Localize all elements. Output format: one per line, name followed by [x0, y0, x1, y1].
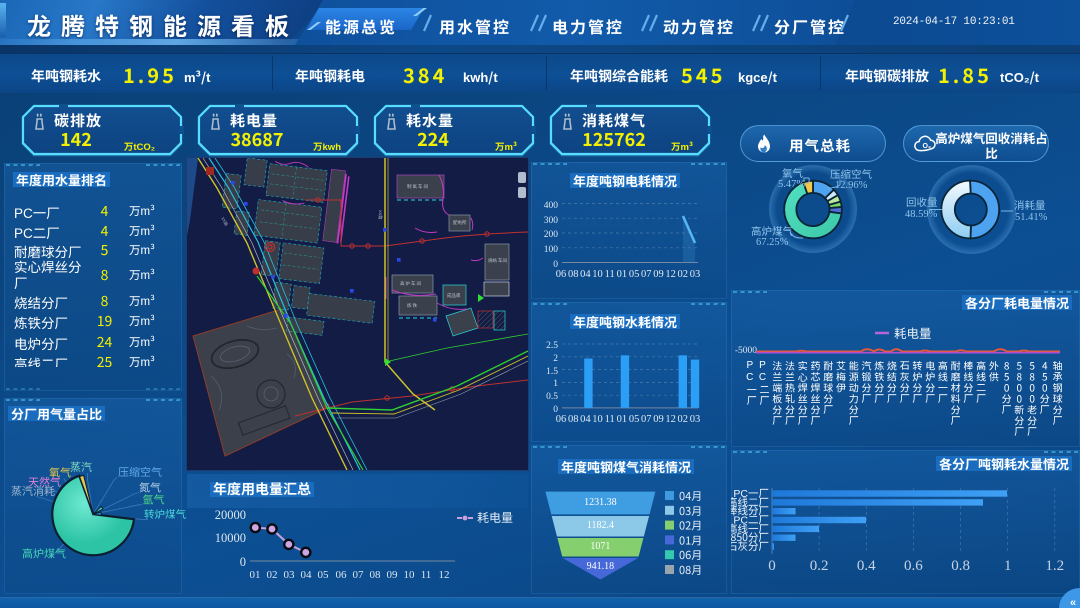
svg-text:2.5: 2.5 [546, 341, 558, 351]
svg-text:高炉煤气: 高炉煤气 [22, 546, 66, 562]
svg-text:耗电量: 耗电量 [477, 509, 513, 526]
svg-text:06: 06 [336, 569, 348, 581]
svg-text:炼 铁: 炼 铁 [407, 303, 418, 309]
svg-text:转炉煤气: 转炉煤气 [144, 507, 186, 522]
svg-text:10: 10 [404, 569, 416, 581]
svg-text:0: 0 [240, 555, 246, 569]
svg-text:09: 09 [653, 414, 664, 425]
svg-text:05: 05 [318, 569, 330, 581]
svg-text:10: 10 [592, 269, 603, 280]
svg-text:05: 05 [629, 269, 640, 280]
svg-text:12: 12 [665, 414, 676, 425]
svg-text:-5000: -5000 [735, 346, 757, 356]
svg-text:01: 01 [617, 269, 628, 280]
svg-text:5.47%: 5.47% [778, 179, 805, 190]
svg-text:01: 01 [250, 569, 261, 581]
svg-text:2: 2 [553, 354, 558, 364]
svg-text:03: 03 [284, 569, 296, 581]
svg-text:11: 11 [605, 414, 615, 425]
svg-text:蒸汽消耗: 蒸汽消耗 [11, 483, 55, 499]
svg-text:1182.4: 1182.4 [587, 520, 614, 531]
svg-text:06月: 06月 [679, 547, 702, 563]
svg-text:04月: 04月 [679, 488, 702, 504]
svg-text:XX路: XX路 [377, 210, 384, 219]
svg-text:48.59%: 48.59% [905, 209, 938, 220]
svg-text:1.5: 1.5 [546, 367, 558, 377]
svg-text:03: 03 [690, 414, 701, 425]
svg-text:06: 06 [556, 414, 567, 425]
svg-text:09: 09 [387, 569, 399, 581]
svg-text:蒸汽: 蒸汽 [70, 459, 92, 475]
svg-text:1231.38: 1231.38 [584, 497, 617, 508]
svg-text:08: 08 [568, 414, 579, 425]
svg-text:200: 200 [544, 230, 559, 240]
svg-text:10: 10 [592, 414, 603, 425]
svg-text:02: 02 [678, 269, 689, 280]
svg-text:07: 07 [353, 569, 365, 581]
svg-text:配电所: 配电所 [453, 219, 467, 226]
svg-text:20000: 20000 [215, 508, 246, 522]
svg-text:0: 0 [768, 558, 776, 574]
svg-text:12: 12 [439, 569, 450, 581]
svg-text:09: 09 [653, 269, 664, 280]
svg-text:1.2: 1.2 [1045, 558, 1064, 574]
svg-text:耗电量: 耗电量 [894, 323, 932, 342]
svg-text:02月: 02月 [679, 518, 702, 534]
svg-text:01月: 01月 [679, 532, 702, 548]
svg-text:100: 100 [544, 245, 559, 255]
svg-text:01: 01 [617, 414, 628, 425]
svg-text:烧结 车间: 烧结 车间 [488, 257, 508, 264]
svg-text:12: 12 [665, 269, 676, 280]
svg-text:03月: 03月 [679, 503, 702, 519]
svg-text:300: 300 [544, 216, 559, 226]
svg-text:氩气: 氩气 [143, 491, 165, 507]
svg-text:0.2: 0.2 [810, 558, 829, 574]
svg-text:11: 11 [605, 269, 615, 280]
svg-text:02: 02 [678, 414, 689, 425]
svg-text:51.41%: 51.41% [1015, 212, 1048, 223]
svg-text:压缩空气: 压缩空气 [118, 464, 162, 480]
svg-text:400: 400 [544, 201, 559, 211]
svg-text:08: 08 [370, 569, 382, 581]
svg-text:1071: 1071 [590, 541, 610, 552]
svg-text:回收量: 回收量 [906, 195, 938, 210]
svg-text:08月: 08月 [679, 562, 702, 578]
svg-text:0.4: 0.4 [857, 558, 876, 574]
svg-text:04: 04 [301, 569, 313, 581]
svg-text:高 炉 车 间: 高 炉 车 间 [400, 280, 422, 287]
svg-text:制 氧 车 间: 制 氧 车 间 [407, 183, 429, 190]
svg-text:0.6: 0.6 [904, 558, 923, 574]
svg-text:10000: 10000 [215, 531, 246, 545]
svg-text:1: 1 [553, 379, 558, 389]
svg-text:04: 04 [580, 269, 591, 280]
svg-text:67.25%: 67.25% [756, 237, 789, 248]
svg-text:08: 08 [568, 269, 579, 280]
svg-text:07: 07 [641, 414, 652, 425]
svg-text:06: 06 [556, 269, 567, 280]
svg-text:11: 11 [421, 569, 432, 581]
svg-text:04: 04 [580, 414, 591, 425]
svg-text:07: 07 [641, 269, 652, 280]
svg-text:O₂: O₂ [923, 141, 932, 151]
svg-text:05: 05 [629, 414, 640, 425]
svg-text:02: 02 [267, 569, 278, 581]
svg-text:石灰分厂: 石灰分厂 [731, 539, 769, 554]
svg-text:成品库: 成品库 [447, 292, 461, 299]
svg-text:消耗量: 消耗量 [1014, 198, 1046, 213]
svg-text:1: 1 [1004, 558, 1012, 574]
svg-text:0.8: 0.8 [951, 558, 970, 574]
svg-text:0.5: 0.5 [546, 392, 558, 402]
svg-text:03: 03 [690, 269, 701, 280]
svg-text:941.18: 941.18 [587, 561, 615, 572]
